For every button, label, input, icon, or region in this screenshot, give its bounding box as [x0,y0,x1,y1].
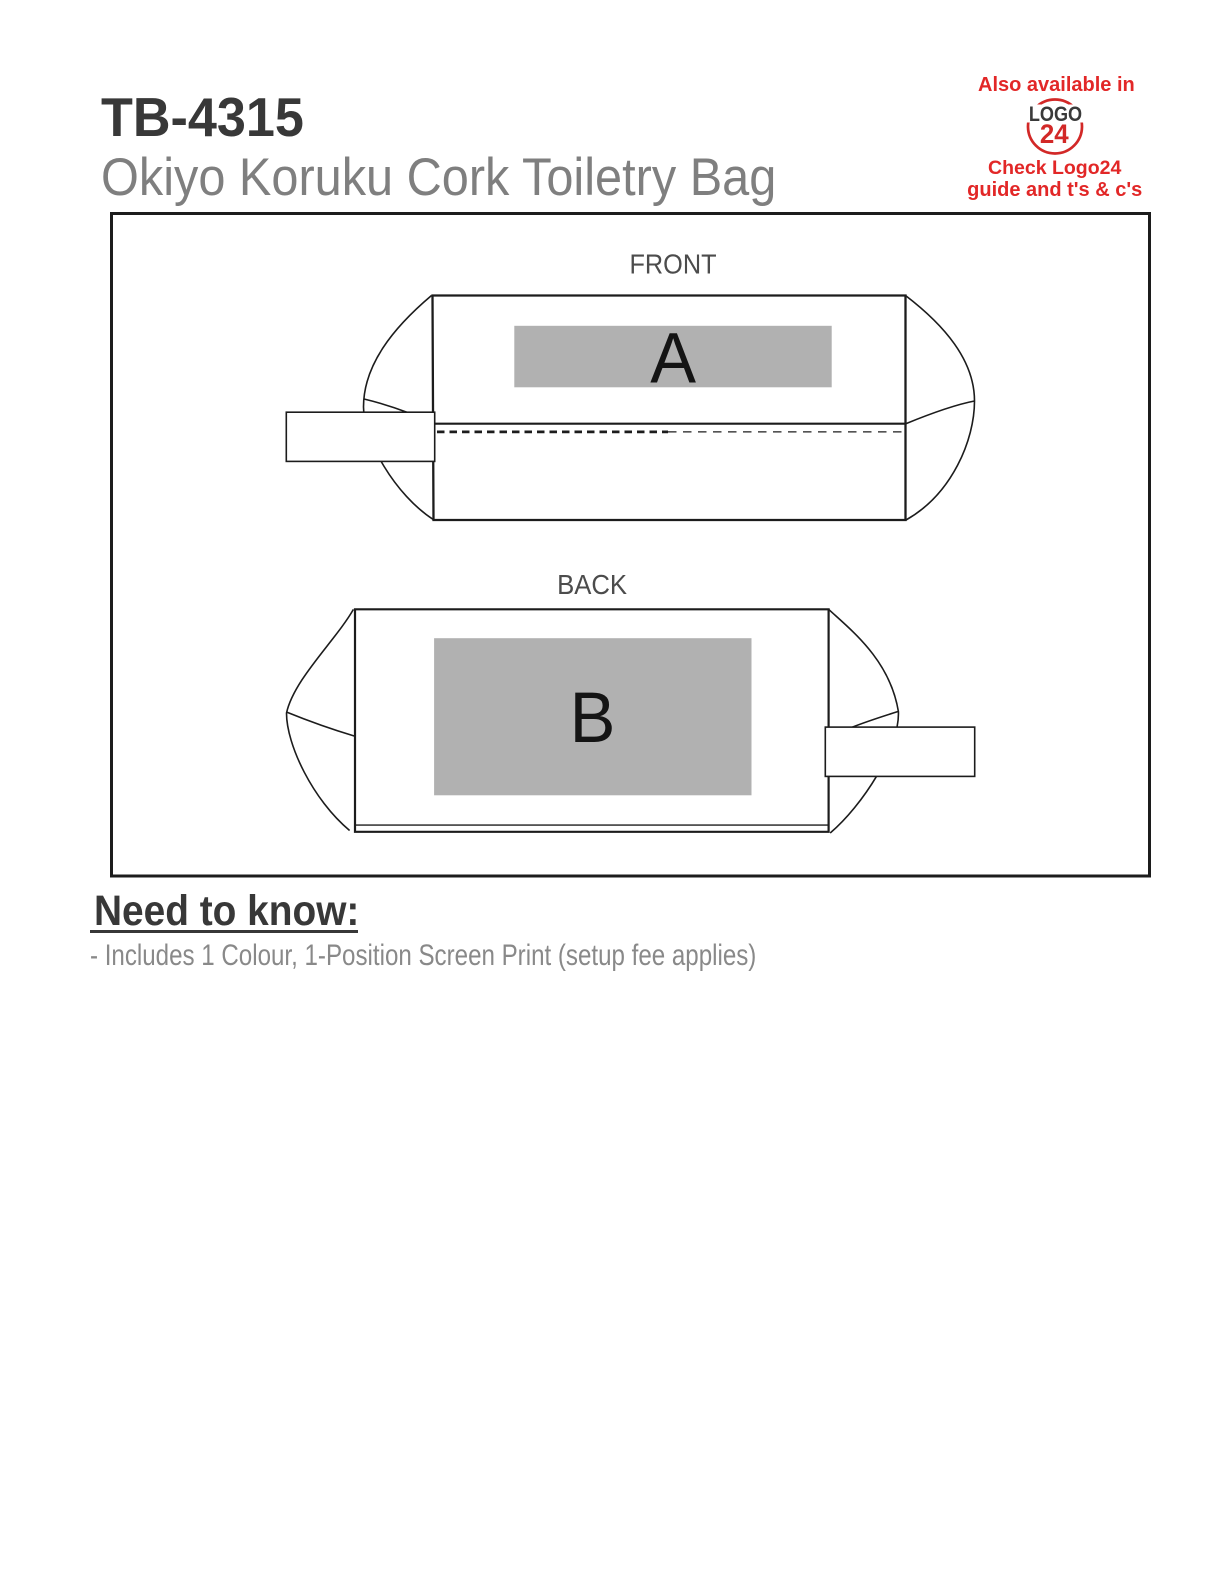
svg-text:BACK: BACK [557,569,627,600]
svg-text:FRONT: FRONT [629,248,716,279]
svg-text:A: A [650,318,696,398]
svg-text:B: B [570,678,616,758]
